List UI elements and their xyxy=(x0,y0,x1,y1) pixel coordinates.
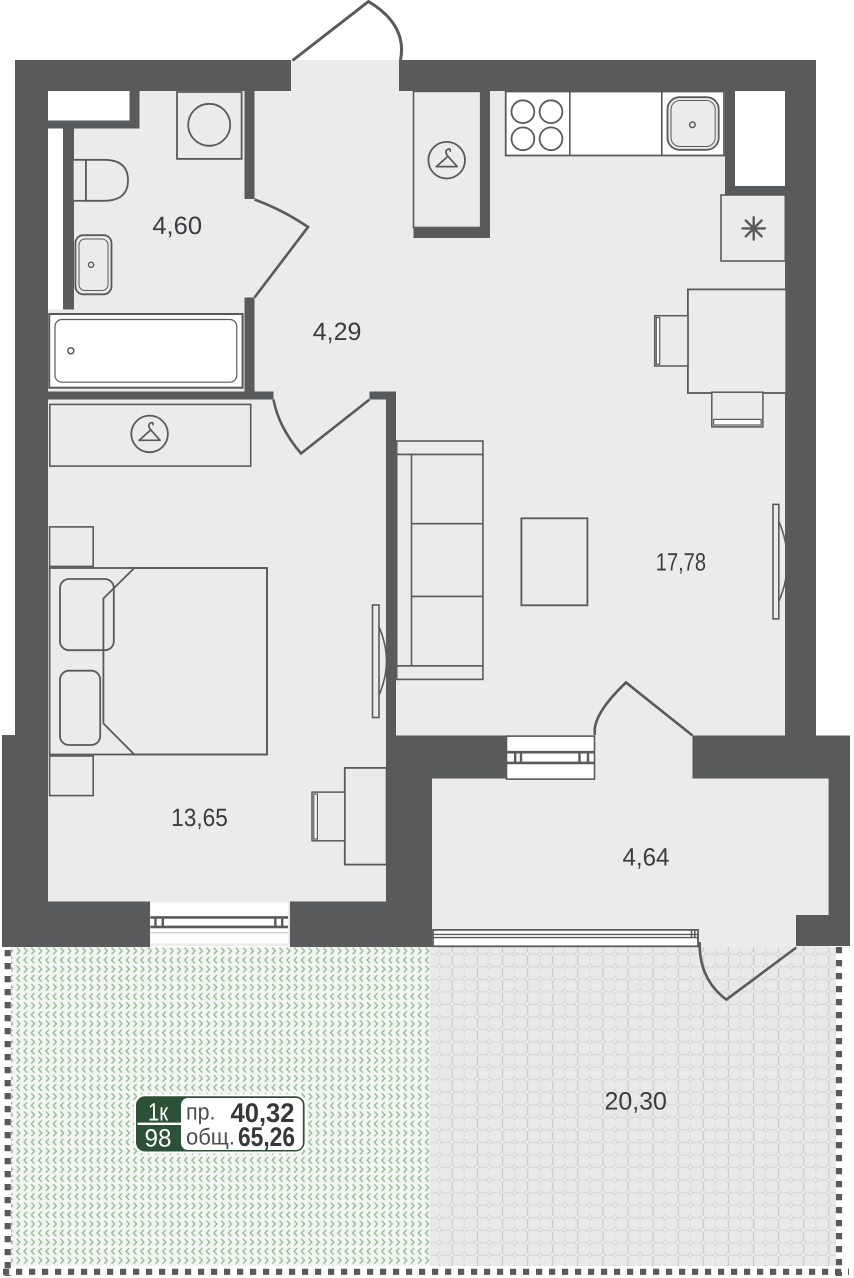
svg-text:общ.: общ. xyxy=(186,1124,235,1150)
svg-text:4,64: 4,64 xyxy=(623,844,670,872)
svg-text:98: 98 xyxy=(145,1124,172,1152)
svg-text:1к: 1к xyxy=(148,1099,169,1127)
svg-text:пр.: пр. xyxy=(186,1099,216,1125)
svg-text:4,60: 4,60 xyxy=(152,212,202,240)
svg-text:4,29: 4,29 xyxy=(313,318,362,346)
svg-text:20,30: 20,30 xyxy=(604,1088,667,1116)
svg-text:17,78: 17,78 xyxy=(656,549,706,577)
svg-text:65,26: 65,26 xyxy=(238,1122,295,1152)
svg-text:13,65: 13,65 xyxy=(171,804,228,832)
